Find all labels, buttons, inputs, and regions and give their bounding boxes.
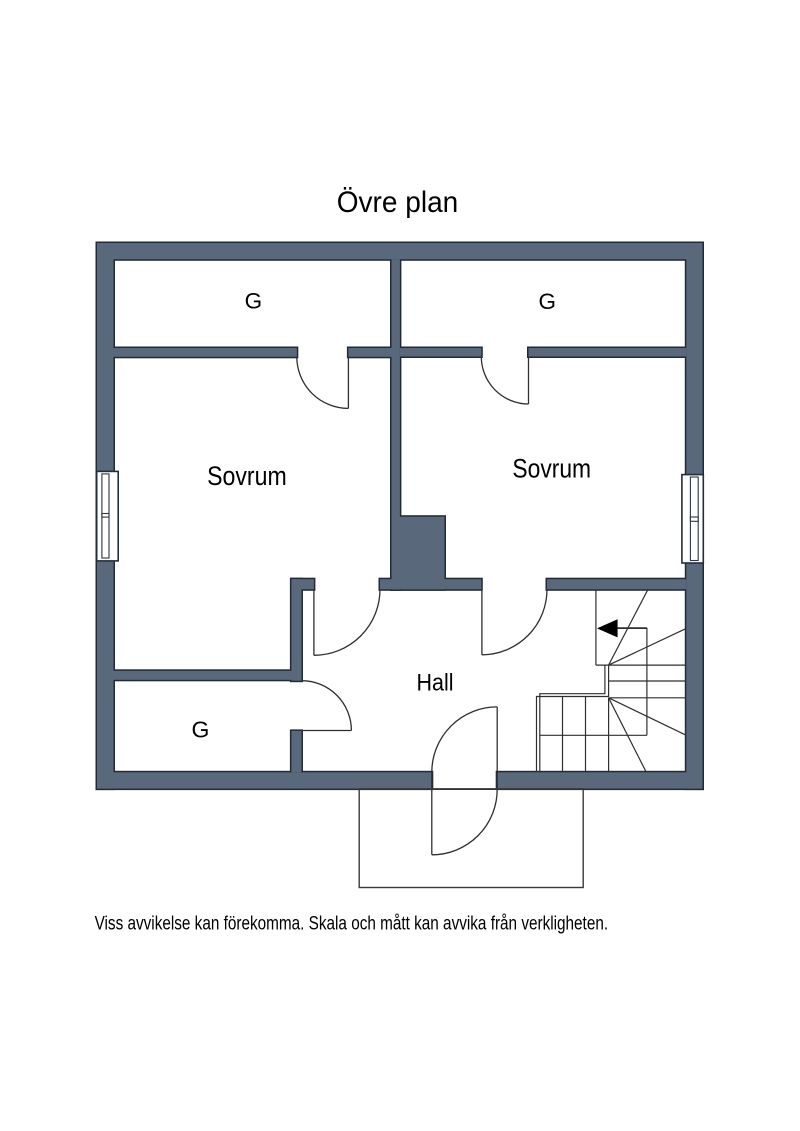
- svg-text:Hall: Hall: [417, 670, 454, 697]
- svg-text:Sovrum: Sovrum: [512, 454, 591, 484]
- svg-text:Viss avvikelse kan förekomma.: Viss avvikelse kan förekomma. Skala och …: [95, 913, 609, 934]
- svg-text:G: G: [245, 288, 263, 313]
- svg-text:G: G: [192, 717, 210, 743]
- svg-text:G: G: [538, 289, 556, 314]
- svg-text:Övre plan: Övre plan: [337, 186, 459, 219]
- svg-text:Sovrum: Sovrum: [207, 461, 287, 491]
